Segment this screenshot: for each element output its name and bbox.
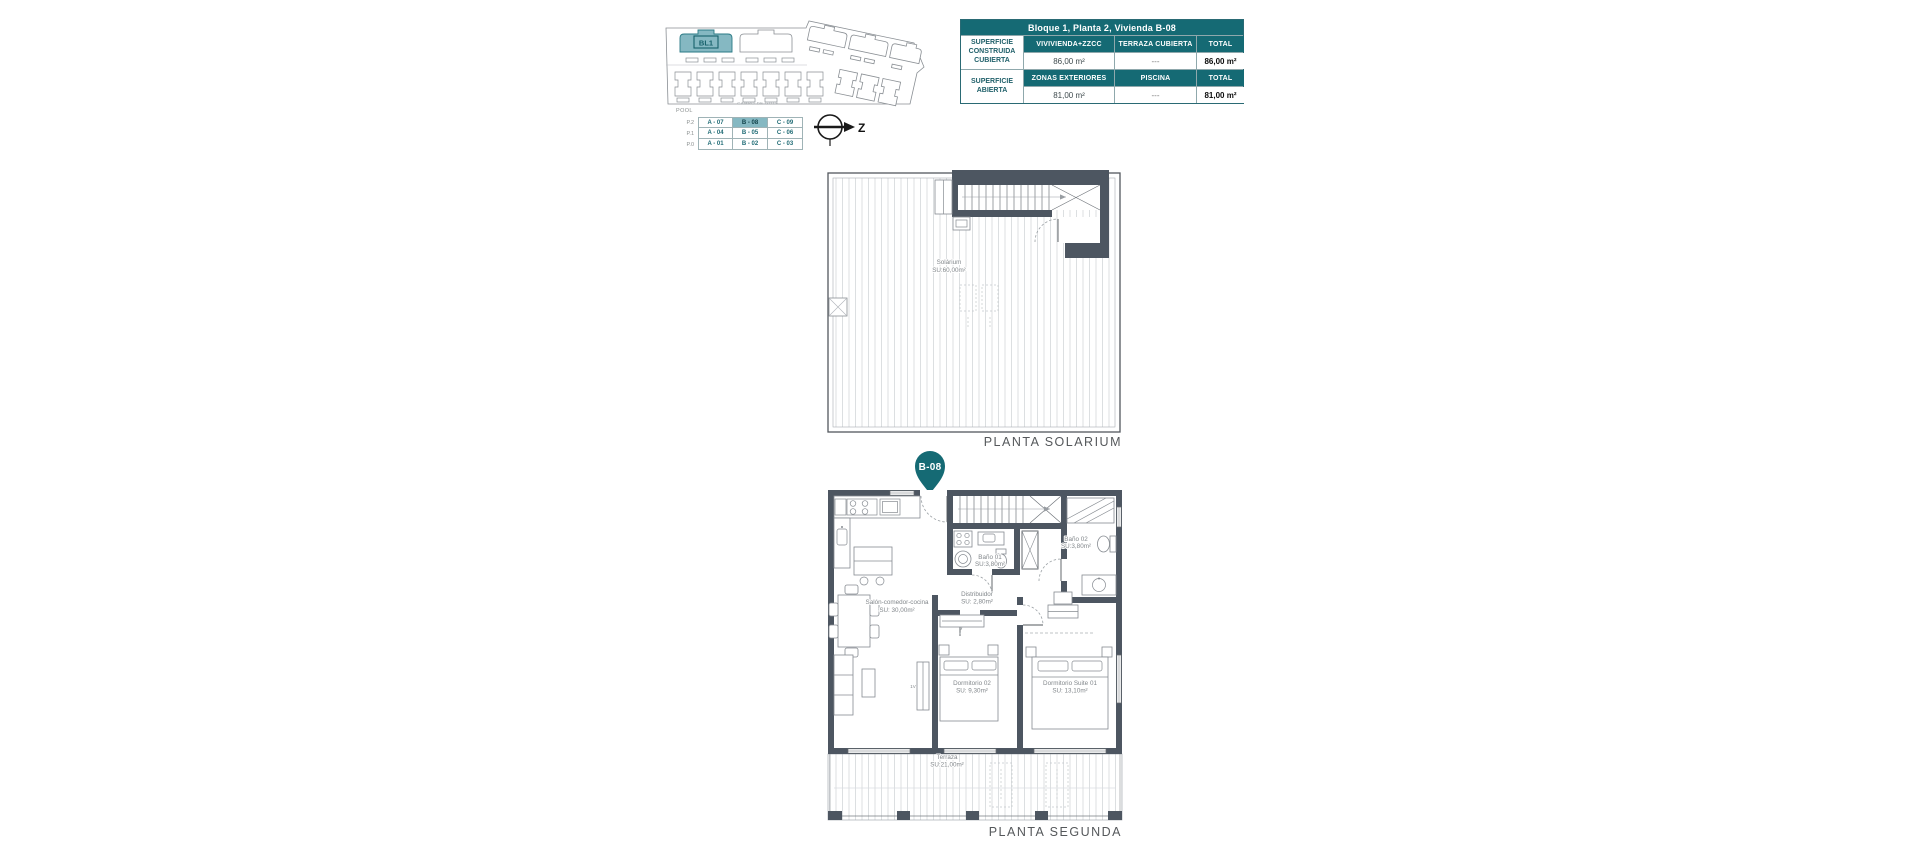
window-tag: 1V	[910, 684, 916, 689]
svg-text:SU: 13,10m²: SU: 13,10m²	[1052, 688, 1087, 695]
svg-text:Dormitorio 02: Dormitorio 02	[953, 680, 991, 687]
svg-text:Solárium: Solárium	[937, 259, 962, 266]
svg-text:SU: 9,30m²: SU: 9,30m²	[956, 688, 988, 695]
pool-label: POOL	[676, 108, 693, 114]
svg-text:Salón-comedor-cocina: Salón-comedor-cocina	[866, 599, 929, 606]
unit-cell: C - 09	[768, 117, 803, 128]
surface-table-title: Bloque 1, Planta 2, Vivienda B-08	[961, 20, 1243, 35]
svg-text:SU:60,00m²: SU:60,00m²	[932, 267, 966, 274]
level-label: P.1	[674, 128, 698, 139]
col-header: ZONAS EXTERIORES	[1024, 70, 1114, 86]
golf-caption: CAMPO DE GOLF	[737, 101, 778, 106]
location-pin-icon: B-08	[915, 451, 945, 494]
unit-cell: B - 02	[733, 139, 768, 150]
unit-cell: A - 04	[698, 128, 733, 139]
level-label: P.0	[674, 139, 698, 150]
total-cell: 86,00 m²	[1197, 53, 1244, 69]
level-label: P.2	[674, 117, 698, 128]
svg-text:SU:21,00m²: SU:21,00m²	[930, 762, 964, 769]
unit-cell: C - 06	[768, 128, 803, 139]
solarium-floor-plan: Solárium SU:60,00m²	[820, 165, 1130, 455]
value-cell: 81,00 m²	[1024, 87, 1114, 103]
svg-text:B-08: B-08	[919, 462, 942, 473]
site-plan: BL1	[660, 18, 930, 110]
col-header: TOTAL	[1197, 36, 1244, 52]
col-header: TERRAZA CUBIERTA	[1115, 36, 1196, 52]
svg-text:Dormitorio Suite 01: Dormitorio Suite 01	[1043, 680, 1097, 687]
svg-text:SU: 30,00m²: SU: 30,00m²	[879, 607, 914, 614]
value-cell: ---	[1115, 87, 1196, 103]
total-cell: 81,00 m²	[1197, 87, 1244, 103]
svg-text:SU: 2,80m²: SU: 2,80m²	[961, 599, 993, 606]
svg-text:Distribuidor: Distribuidor	[961, 591, 993, 598]
svg-text:SU:3,80m²: SU:3,80m²	[1061, 543, 1091, 550]
compass-label: Z	[858, 121, 865, 135]
terrace-deck	[828, 754, 1122, 820]
svg-text:Baño 01: Baño 01	[978, 554, 1002, 561]
unit-cell: A - 07	[698, 117, 733, 128]
solarium-room-label: Solárium SU:60,00m²	[932, 259, 966, 274]
surface-table: Bloque 1, Planta 2, Vivienda B-08 SUPERF…	[960, 19, 1244, 104]
value-cell: 86,00 m²	[1024, 53, 1114, 69]
col-header: TOTAL	[1197, 70, 1244, 86]
segunda-floor-plan: B-08	[820, 445, 1130, 845]
row-label-open: SUPERFICIE ABIERTA	[961, 70, 1023, 103]
unit-cell: C - 03	[768, 139, 803, 150]
row-label-covered: SUPERFICIE CONSTRUIDA CUBIERTA	[961, 36, 1023, 69]
value-cell: ---	[1115, 53, 1196, 69]
svg-text:Baño 02: Baño 02	[1064, 536, 1088, 543]
segunda-caption: PLANTA SEGUNDA	[820, 825, 1122, 839]
col-header: PISCINA	[1115, 70, 1196, 86]
svg-text:SU:3,80m²: SU:3,80m²	[975, 561, 1005, 568]
unit-cell-selected: B - 08	[733, 117, 768, 128]
bl1-label: BL1	[699, 38, 713, 47]
unit-cell: B - 05	[733, 128, 768, 139]
unit-cell: A - 01	[698, 139, 733, 150]
duct-shaft	[1022, 531, 1038, 569]
svg-text:Terraza: Terraza	[937, 754, 958, 761]
unit-level-table: P.2 A - 07 B - 08 C - 09 P.1 A - 04 B - …	[674, 117, 803, 150]
north-arrow-icon: Z	[810, 107, 874, 153]
plan-sheet: BL1	[0, 0, 1920, 850]
col-header: VIVIVIENDA+ZZCC	[1024, 36, 1114, 52]
solarium-skylight	[829, 298, 847, 316]
